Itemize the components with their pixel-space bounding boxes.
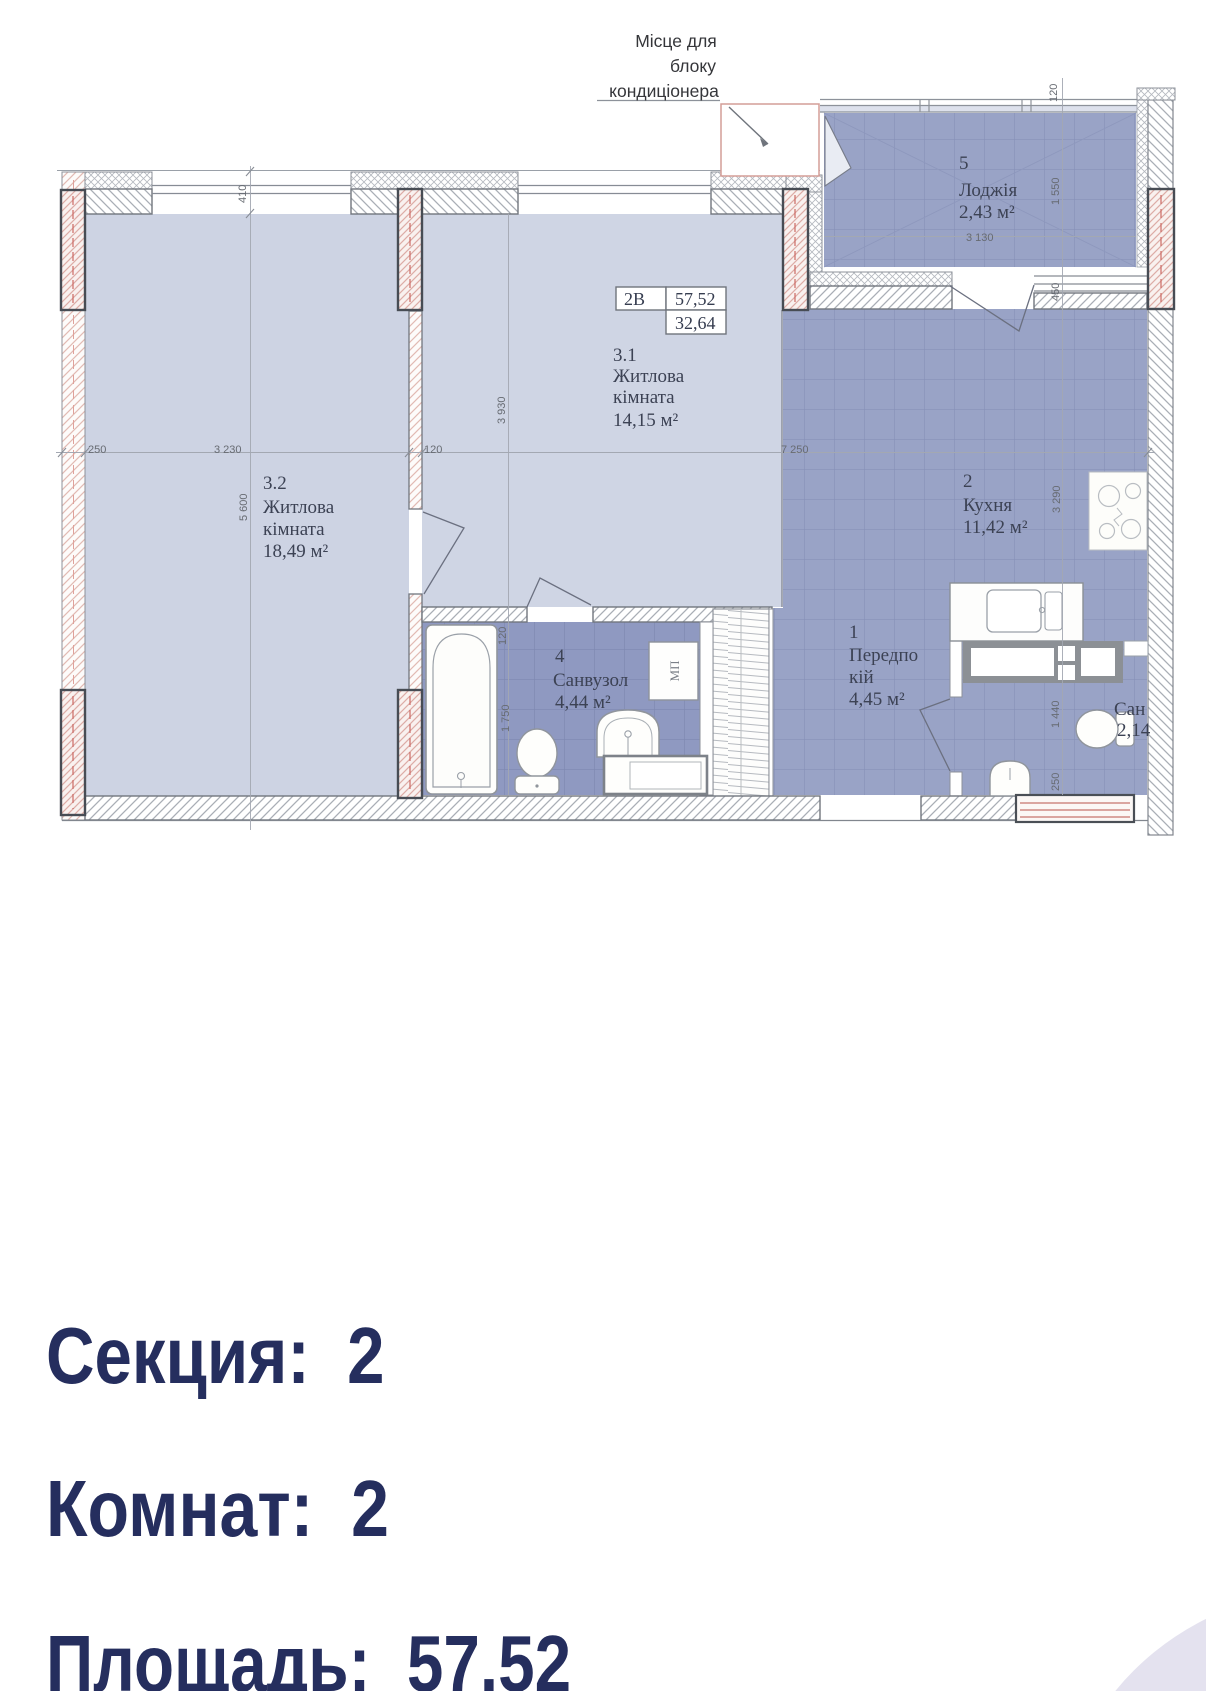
- svg-text:2,43 м²: 2,43 м²: [959, 202, 1015, 223]
- svg-text:1 440: 1 440: [1050, 700, 1062, 728]
- svg-text:3.2: 3.2: [263, 473, 287, 494]
- svg-text:1: 1: [849, 622, 859, 643]
- svg-text:Сан: Сан: [1114, 699, 1145, 720]
- svg-text:2: 2: [963, 471, 973, 492]
- svg-text:250: 250: [88, 444, 106, 456]
- svg-text:Житлова: Житлова: [613, 366, 685, 387]
- svg-text:Кухня: Кухня: [963, 495, 1012, 516]
- svg-text:3 290: 3 290: [1051, 485, 1063, 513]
- svg-text:5: 5: [959, 153, 969, 174]
- svg-text:3 230: 3 230: [214, 444, 242, 456]
- svg-text:250: 250: [1050, 773, 1062, 791]
- svg-text:5 600: 5 600: [238, 493, 250, 521]
- svg-text:Житлова: Житлова: [263, 497, 335, 518]
- svg-text:4,44 м²: 4,44 м²: [555, 692, 611, 713]
- svg-text:блоку: блоку: [670, 56, 716, 76]
- svg-text:1 750: 1 750: [500, 704, 512, 732]
- svg-text:4,45 м²: 4,45 м²: [849, 689, 905, 710]
- svg-text:3 130: 3 130: [966, 232, 994, 244]
- svg-text:1 550: 1 550: [1050, 177, 1062, 205]
- svg-text:Лоджія: Лоджія: [959, 180, 1017, 201]
- svg-text:32,64: 32,64: [675, 313, 716, 333]
- svg-text:кімната: кімната: [263, 519, 325, 540]
- svg-text:57,52: 57,52: [675, 289, 716, 309]
- svg-text:2,14: 2,14: [1117, 720, 1151, 741]
- svg-text:7 250: 7 250: [781, 444, 809, 456]
- svg-text:4: 4: [555, 646, 565, 667]
- svg-text:410: 410: [237, 185, 249, 203]
- svg-text:Санвузол: Санвузол: [553, 670, 629, 691]
- svg-text:2В: 2В: [624, 289, 645, 309]
- svg-text:18,49 м²: 18,49 м²: [263, 541, 329, 562]
- svg-text:Місце для: Місце для: [635, 31, 717, 51]
- svg-text:14,15 м²: 14,15 м²: [613, 410, 679, 431]
- svg-text:3 930: 3 930: [496, 396, 508, 424]
- svg-text:120: 120: [497, 627, 509, 645]
- svg-text:кімната: кімната: [613, 387, 675, 408]
- svg-text:МП: МП: [667, 661, 682, 682]
- svg-text:кондиціонера: кондиціонера: [609, 81, 719, 101]
- svg-text:Передпо: Передпо: [849, 645, 918, 666]
- svg-text:11,42 м²: 11,42 м²: [963, 517, 1028, 538]
- svg-text:120: 120: [1048, 84, 1060, 102]
- svg-text:120: 120: [424, 444, 442, 456]
- svg-text:3.1: 3.1: [613, 345, 637, 366]
- svg-text:450: 450: [1050, 283, 1062, 301]
- svg-text:кій: кій: [849, 667, 874, 688]
